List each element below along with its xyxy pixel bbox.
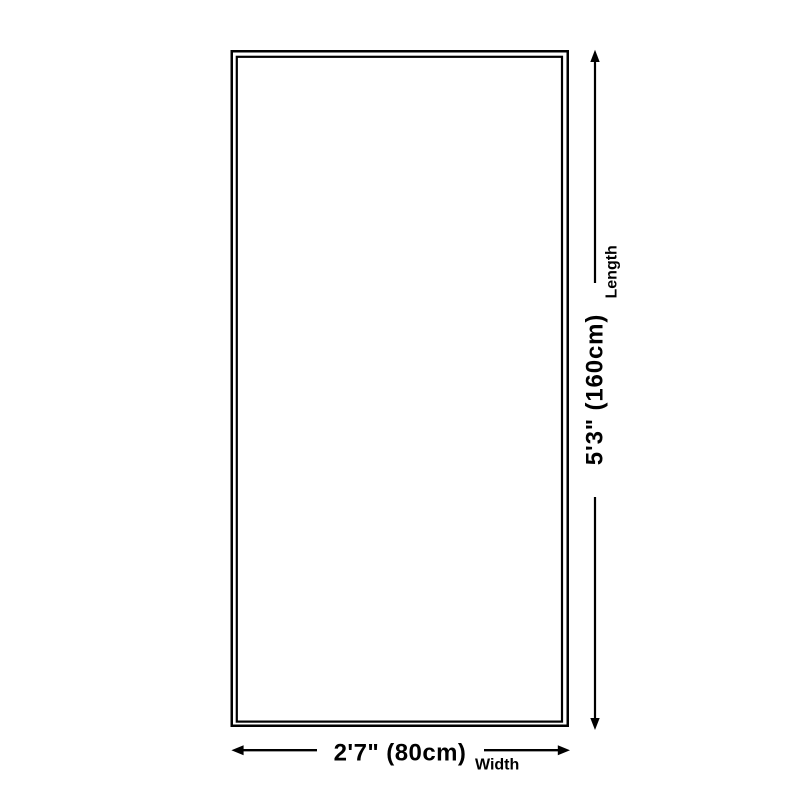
svg-text:Length: Length	[604, 245, 621, 298]
svg-text:5'3" (160cm): 5'3" (160cm)	[582, 314, 609, 465]
svg-text:2'7" (80cm): 2'7" (80cm)	[334, 740, 467, 767]
svg-text:Width: Width	[475, 757, 519, 774]
